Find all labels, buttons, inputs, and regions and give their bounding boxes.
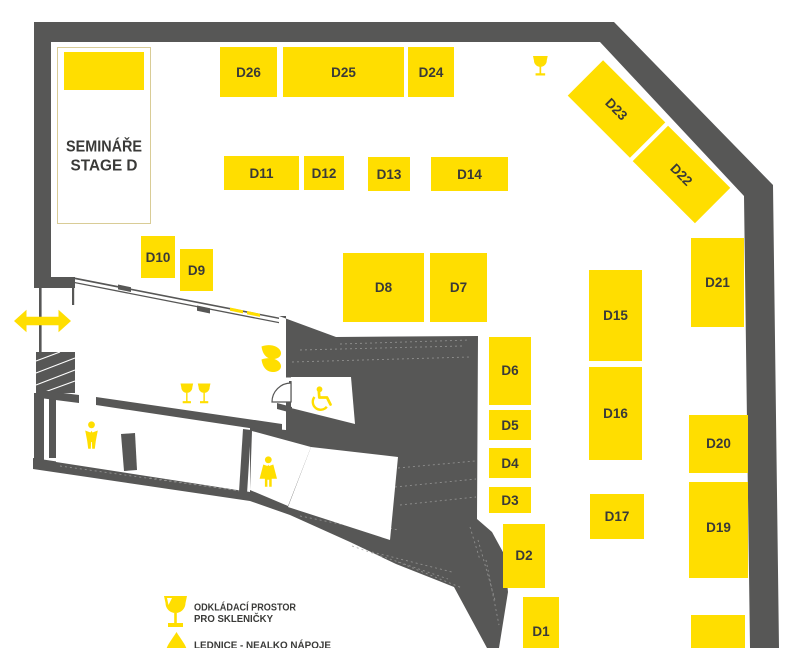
svg-text:D8: D8	[375, 280, 393, 295]
svg-text:D11: D11	[249, 166, 274, 181]
svg-text:SEMINÁŘE: SEMINÁŘE	[66, 138, 142, 156]
svg-text:D1: D1	[532, 624, 550, 639]
svg-text:LEDNICE - NEALKO NÁPOJE: LEDNICE - NEALKO NÁPOJE	[194, 639, 331, 648]
svg-text:D12: D12	[312, 166, 337, 181]
svg-text:D9: D9	[188, 263, 205, 278]
svg-text:PRO SKLENIČKY: PRO SKLENIČKY	[194, 612, 273, 625]
svg-text:STAGE D: STAGE D	[71, 158, 138, 175]
svg-text:D17: D17	[605, 509, 630, 524]
svg-text:D7: D7	[450, 280, 467, 295]
svg-text:D16: D16	[603, 406, 628, 421]
svg-text:D19: D19	[706, 520, 731, 535]
svg-text:D4: D4	[501, 456, 519, 471]
svg-text:D20: D20	[706, 436, 731, 451]
svg-text:D14: D14	[457, 167, 482, 182]
svg-text:ODKLÁDACÍ PROSTOR: ODKLÁDACÍ PROSTOR	[194, 601, 296, 614]
svg-text:D3: D3	[501, 493, 519, 508]
svg-text:D5: D5	[501, 418, 519, 433]
svg-text:D21: D21	[705, 275, 730, 290]
svg-text:D24: D24	[419, 65, 444, 80]
svg-text:D25: D25	[331, 65, 356, 80]
svg-text:D26: D26	[236, 65, 261, 80]
svg-text:D13: D13	[377, 167, 402, 182]
svg-text:D2: D2	[515, 548, 532, 563]
svg-text:D6: D6	[501, 363, 519, 378]
svg-text:D15: D15	[603, 308, 628, 323]
svg-text:D10: D10	[146, 250, 171, 265]
